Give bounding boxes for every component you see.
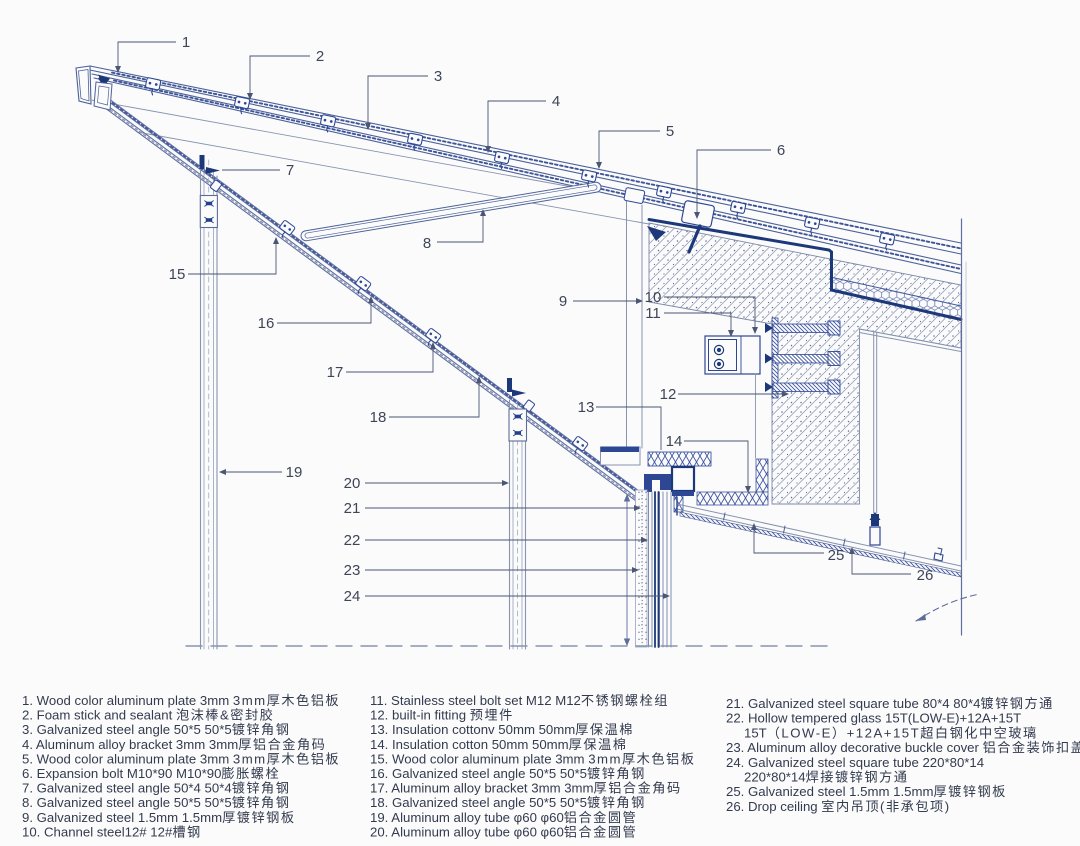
svg-text:7. Galvanized steel angle 50*4: 7. Galvanized steel angle 50*4 50*4镀锌角钢 (22, 780, 290, 796)
svg-text:22: 22 (344, 532, 361, 549)
svg-text:5: 5 (666, 123, 674, 140)
svg-text:10: 10 (645, 289, 662, 306)
svg-text:20. Aluminum alloy tube φ60 φ: 20. Aluminum alloy tube φ60 φ60铝合金圆管 (370, 824, 637, 839)
svg-text:16. Galvanized steel angle 50*: 16. Galvanized steel angle 50*5 50*5镀锌角钢 (370, 765, 646, 781)
svg-text:9. Galvanized steel 1.5mm 1.5: 9. Galvanized steel 1.5mm 1.5mm厚镀锌钢板 (22, 809, 296, 825)
svg-text:23. Aluminum alloy decorative: 23. Aluminum alloy decorative buckle cov… (726, 740, 1080, 755)
svg-text:1: 1 (182, 34, 190, 51)
svg-text:220*80*14焊接镀锌钢方通: 220*80*14焊接镀锌钢方通 (744, 769, 908, 785)
svg-text:12. built-in fitting 预埋件: 12. built-in fitting 预埋件 (370, 708, 514, 723)
svg-text:4. Aluminum alloy bracket 3mm: 4. Aluminum alloy bracket 3mm 3mm厚铝合金角码 (22, 737, 326, 752)
svg-text:2: 2 (316, 48, 324, 65)
svg-text:3: 3 (434, 68, 442, 85)
svg-text:9: 9 (559, 293, 567, 310)
svg-text:22. Hollow tempered glass 15T(: 22. Hollow tempered glass 15T(LOW-E)+12A… (726, 711, 1021, 726)
svg-text:12: 12 (660, 386, 677, 403)
svg-text:18. Galvanized steel angle 50*: 18. Galvanized steel angle 50*5 50*5镀锌角钢 (370, 794, 646, 810)
svg-text:5. Wood color aluminum plate 3: 5. Wood color aluminum plate 3mm 3mm厚木色铝… (22, 750, 340, 766)
svg-text:11. Stainless steel bolt set M: 11. Stainless steel bolt set M12 M12不锈钢螺… (370, 693, 669, 708)
svg-text:24: 24 (344, 588, 361, 605)
svg-text:10. Channel steel12# 12#槽钢: 10. Channel steel12# 12#槽钢 (22, 824, 202, 839)
svg-text:15: 15 (169, 266, 186, 283)
svg-text:25: 25 (828, 547, 845, 564)
svg-text:1. Wood color aluminum plate 3: 1. Wood color aluminum plate 3mm 3mm厚木色铝… (22, 692, 340, 708)
svg-text:26: 26 (917, 567, 934, 584)
svg-text:13: 13 (578, 399, 595, 416)
svg-text:24. Galvanized steel square tu: 24. Galvanized steel square tube 220*80*… (726, 755, 984, 770)
svg-text:21: 21 (344, 500, 361, 517)
svg-text:7: 7 (286, 162, 294, 179)
svg-text:6: 6 (777, 142, 785, 159)
svg-text:20: 20 (344, 475, 361, 492)
svg-text:17. Aluminum alloy bracket 3mm: 17. Aluminum alloy bracket 3mm 3mm厚铝合金角码 (370, 781, 682, 796)
svg-text:14. Insulation cotton 50mm 50: 14. Insulation cotton 50mm 50mm厚保温棉 (370, 737, 627, 752)
svg-text:25. Galvanized steel 1.5mm 1.: 25. Galvanized steel 1.5mm 1.5mm厚镀锌钢板 (726, 783, 1007, 799)
svg-text:4: 4 (552, 93, 560, 110)
svg-text:15T（LOW-E）+12A+15T超白钢化中空玻璃: 15T（LOW-E）+12A+15T超白钢化中空玻璃 (744, 725, 1038, 740)
svg-text:19: 19 (286, 464, 303, 481)
svg-text:8: 8 (423, 235, 431, 252)
svg-text:11: 11 (645, 305, 661, 322)
svg-text:2. Foam stick and sealant 泡沫棒: 2. Foam stick and sealant 泡沫棒&密封胶 (22, 707, 274, 723)
svg-text:8. Galvanized steel angle 50*5: 8. Galvanized steel angle 50*5 50*5镀锌角钢 (22, 794, 290, 810)
svg-text:14: 14 (666, 433, 683, 450)
svg-text:26. Drop ceiling 室内吊顶(非承包项): 26. Drop ceiling 室内吊顶(非承包项) (726, 798, 951, 814)
svg-text:19. Aluminum alloy tube φ60 φ: 19. Aluminum alloy tube φ60 φ60铝合金圆管 (370, 810, 637, 825)
svg-text:3. Galvanized steel angle 50*5: 3. Galvanized steel angle 50*5 50*5镀锌角钢 (22, 721, 290, 737)
svg-text:17: 17 (327, 364, 344, 381)
svg-text:23: 23 (344, 562, 361, 579)
svg-text:6. Expansion bolt M10*90 M10*: 6. Expansion bolt M10*90 M10*90膨胀螺栓 (22, 766, 280, 781)
svg-text:15. Wood color aluminum plate: 15. Wood color aluminum plate 3mm 3mm厚木色… (370, 750, 695, 766)
svg-text:18: 18 (370, 409, 387, 426)
svg-text:21. Galvanized steel square tu: 21. Galvanized steel square tube 80*4 80… (726, 695, 1054, 711)
svg-text:16: 16 (258, 315, 275, 332)
svg-text:13. Insulation cottonv 50mm 5: 13. Insulation cottonv 50mm 50mm厚保温棉 (370, 722, 634, 737)
